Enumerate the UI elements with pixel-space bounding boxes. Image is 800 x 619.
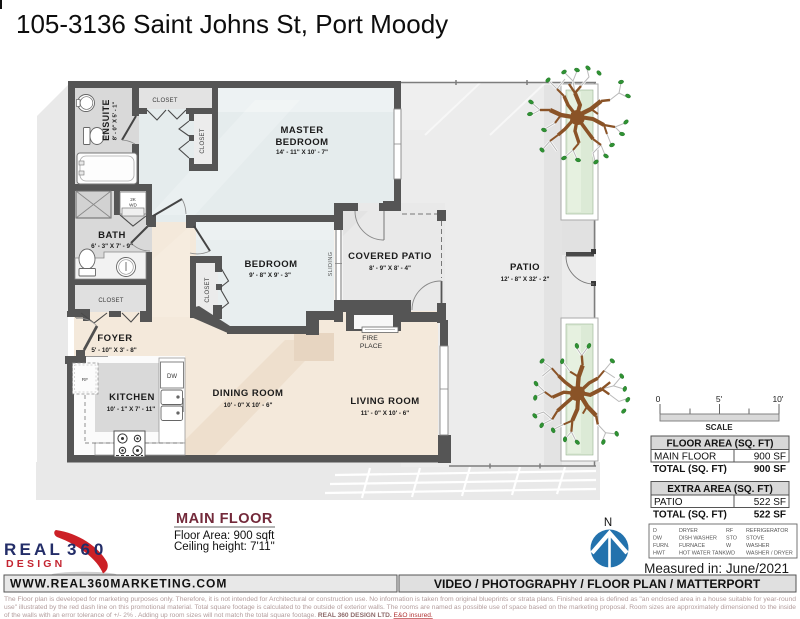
svg-text:VIDEO / PHOTOGRAPHY / FLOOR PL: VIDEO / PHOTOGRAPHY / FLOOR PLAN / MATTE… bbox=[434, 577, 761, 591]
svg-text:N: N bbox=[604, 517, 612, 529]
svg-text:360: 360 bbox=[67, 540, 107, 559]
svg-text:BEDROOM: BEDROOM bbox=[244, 259, 297, 270]
svg-text:105-3136 Saint Johns St, Port: 105-3136 Saint Johns St, Port Moody bbox=[16, 9, 448, 39]
svg-text:STO: STO bbox=[726, 536, 737, 542]
svg-text:DW: DW bbox=[653, 536, 663, 542]
svg-text:Measured in: June/2021: Measured in: June/2021 bbox=[644, 561, 789, 576]
svg-text:LIVING ROOM: LIVING ROOM bbox=[350, 396, 419, 407]
svg-text:PATIO: PATIO bbox=[510, 262, 540, 273]
svg-text:PATIO: PATIO bbox=[654, 497, 683, 508]
svg-text:12' - 8" X 32' - 2": 12' - 8" X 32' - 2" bbox=[501, 276, 550, 283]
svg-text:9' - 8" X 9' - 3": 9' - 8" X 9' - 3" bbox=[249, 272, 291, 279]
svg-text:STOVE: STOVE bbox=[746, 536, 765, 542]
svg-text:The Floor plan is developed fo: The Floor plan is developed for marketin… bbox=[4, 596, 796, 603]
svg-text:of the walls with an error tol: of the walls with an error tolerance of … bbox=[4, 612, 433, 619]
svg-text:900 SF: 900 SF bbox=[754, 452, 786, 463]
svg-text:WD: WD bbox=[726, 551, 735, 557]
svg-text:ENSUITE: ENSUITE bbox=[101, 99, 111, 141]
svg-text:HWT: HWT bbox=[653, 551, 666, 557]
svg-text:WASHER / DRYER: WASHER / DRYER bbox=[746, 551, 793, 557]
svg-text:WWW.REAL360MARKETING.COM: WWW.REAL360MARKETING.COM bbox=[10, 577, 227, 591]
svg-text:TOTAL (SQ. FT): TOTAL (SQ. FT) bbox=[653, 510, 727, 521]
svg-text:FURN.: FURN. bbox=[653, 543, 669, 549]
svg-text:WASHER: WASHER bbox=[746, 543, 770, 549]
svg-text:8' - 0" X 5' - 1": 8' - 0" X 5' - 1" bbox=[113, 101, 119, 140]
svg-text:5' - 10" X 3' - 8": 5' - 10" X 3' - 8" bbox=[91, 347, 136, 354]
svg-text:10' - 1" X 7' - 11": 10' - 1" X 7' - 11" bbox=[107, 406, 156, 413]
svg-text:900 SF: 900 SF bbox=[754, 464, 786, 475]
svg-text:REAL: REAL bbox=[4, 540, 63, 559]
svg-text:2K: 2K bbox=[130, 197, 137, 202]
svg-text:KITCHEN: KITCHEN bbox=[109, 392, 155, 403]
svg-text:MASTER: MASTER bbox=[280, 125, 323, 136]
svg-text:10': 10' bbox=[772, 394, 783, 404]
svg-text:EXTRA AREA (SQ. FT): EXTRA AREA (SQ. FT) bbox=[667, 484, 773, 495]
svg-text:8' - 9" X 8' - 4": 8' - 9" X 8' - 4" bbox=[369, 265, 411, 272]
svg-text:FLOOR AREA (SQ. FT): FLOOR AREA (SQ. FT) bbox=[666, 439, 773, 450]
svg-text:0: 0 bbox=[656, 394, 661, 404]
svg-text:Ceiling height: 7'11": Ceiling height: 7'11" bbox=[174, 541, 275, 553]
svg-text:DESIGN: DESIGN bbox=[6, 558, 65, 570]
svg-text:BATH: BATH bbox=[98, 230, 126, 241]
svg-text:DRYER: DRYER bbox=[679, 528, 698, 534]
svg-text:FIRE: FIRE bbox=[362, 335, 378, 342]
svg-text:CLOSET: CLOSET bbox=[98, 298, 123, 304]
svg-text:SCALE: SCALE bbox=[705, 423, 733, 432]
svg-text:CLOSET: CLOSET bbox=[205, 277, 211, 302]
svg-text:use" illustrated by the red da: use" illustrated by the red dash line on… bbox=[4, 604, 796, 611]
svg-text:CLOSET: CLOSET bbox=[152, 98, 177, 104]
svg-text:MAIN FLOOR: MAIN FLOOR bbox=[654, 452, 716, 463]
svg-text:14' - 11" X 10' - 7": 14' - 11" X 10' - 7" bbox=[276, 149, 328, 156]
svg-text:SLIDING: SLIDING bbox=[328, 252, 334, 277]
svg-text:DISH WASHER: DISH WASHER bbox=[679, 536, 717, 542]
svg-text:TOTAL (SQ. FT): TOTAL (SQ. FT) bbox=[653, 464, 727, 475]
svg-text:COVERED PATIO: COVERED PATIO bbox=[348, 251, 432, 262]
svg-text:11' - 0" X 10' - 6": 11' - 0" X 10' - 6" bbox=[361, 410, 410, 417]
svg-text:RF: RF bbox=[82, 377, 88, 383]
svg-text:REFRIGERATOR: REFRIGERATOR bbox=[746, 528, 788, 534]
svg-text:6' - 3" X 7' - 9": 6' - 3" X 7' - 9" bbox=[91, 243, 133, 250]
svg-text:MAIN FLOOR: MAIN FLOOR bbox=[176, 511, 273, 527]
svg-text:DINING ROOM: DINING ROOM bbox=[213, 388, 284, 399]
svg-text:FURNACE: FURNACE bbox=[679, 543, 705, 549]
svg-text:WD: WD bbox=[129, 203, 137, 208]
svg-text:5': 5' bbox=[716, 394, 723, 404]
svg-text:D: D bbox=[653, 528, 657, 534]
svg-text:522 SF: 522 SF bbox=[754, 510, 786, 521]
svg-text:DW: DW bbox=[167, 374, 177, 380]
svg-text:PLACE: PLACE bbox=[360, 343, 383, 350]
svg-text:10' - 0" X 10' - 6": 10' - 0" X 10' - 6" bbox=[224, 402, 273, 409]
svg-text:522 SF: 522 SF bbox=[754, 497, 786, 508]
svg-text:BEDROOM: BEDROOM bbox=[275, 137, 328, 148]
svg-text:CLOSET: CLOSET bbox=[200, 128, 206, 153]
svg-text:FOYER: FOYER bbox=[97, 333, 132, 344]
svg-text:RF: RF bbox=[726, 528, 734, 534]
svg-text:HOT WATER TANK.: HOT WATER TANK. bbox=[679, 551, 728, 557]
